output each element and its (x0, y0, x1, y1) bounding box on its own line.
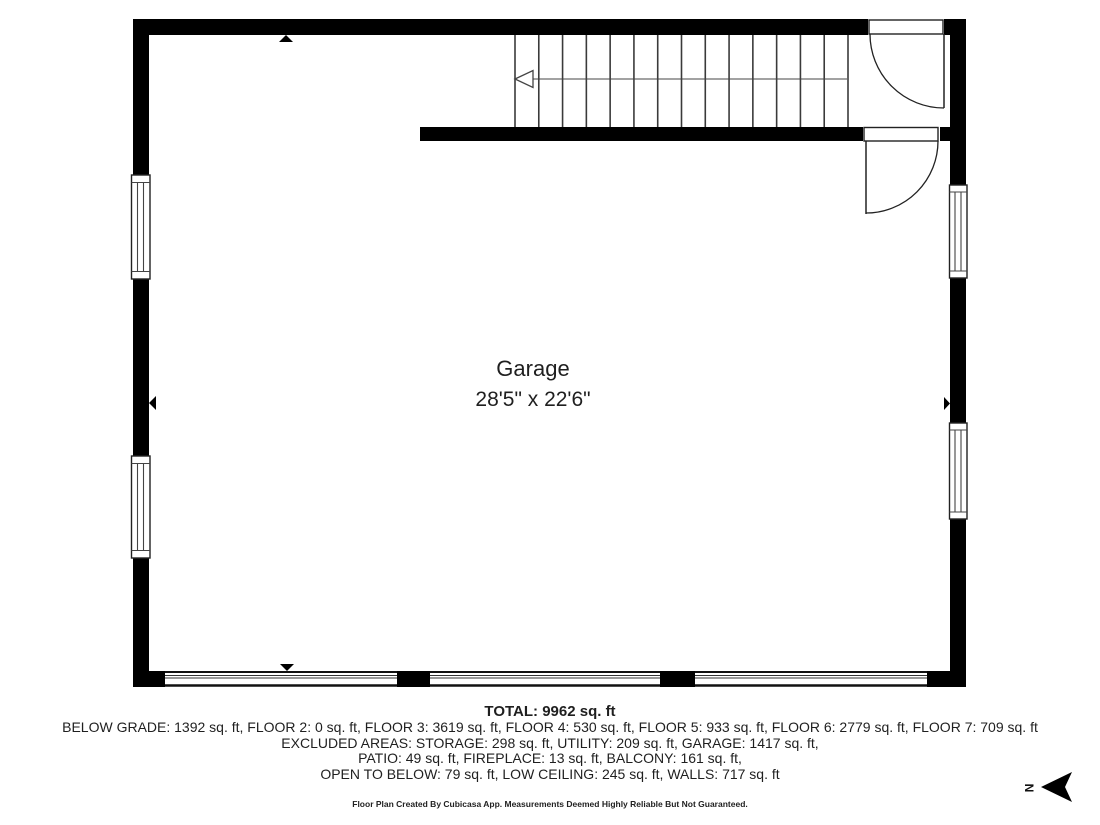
disclaimer-text: Floor Plan Created By Cubicasa App. Meas… (0, 799, 1100, 809)
interior-wall (420, 127, 863, 141)
garage-door-icon (165, 671, 397, 687)
floor-plan-page: Garage 28'5" x 22'6" TOTAL: 9962 sq. ft … (0, 0, 1100, 825)
compass-n-label: N (1022, 784, 1036, 793)
interior-wall-right-stub (940, 127, 966, 141)
excluded-areas-text-2: PATIO: 49 sq. ft, FIREPLACE: 13 sq. ft, … (0, 751, 1100, 767)
door-top-leaf-panel (869, 20, 943, 34)
room-name-label: Garage (383, 356, 683, 382)
garage-door-icon (430, 671, 660, 687)
window-right-lower (950, 423, 968, 519)
floor-plan-drawing (0, 0, 1100, 700)
window-left-upper (132, 175, 151, 279)
north-compass-icon: N (1018, 766, 1088, 812)
area-summary: TOTAL: 9962 sq. ft BELOW GRADE: 1392 sq.… (0, 703, 1100, 782)
left-wall (133, 19, 149, 687)
north-arrow-shape (1041, 772, 1072, 802)
top-wall (133, 19, 868, 35)
garage-door-icon (695, 671, 927, 687)
floor-areas-text: BELOW GRADE: 1392 sq. ft, FLOOR 2: 0 sq.… (0, 720, 1100, 736)
door-interior-leaf-panel (864, 128, 938, 142)
excluded-areas-text-3: OPEN TO BELOW: 79 sq. ft, LOW CEILING: 2… (0, 767, 1100, 783)
right-wall (950, 19, 966, 687)
window-left-lower (132, 456, 151, 558)
window-right-upper (950, 185, 968, 278)
excluded-areas-text: EXCLUDED AREAS: STORAGE: 298 sq. ft, UTI… (0, 736, 1100, 752)
room-dimensions-label: 28'5" x 22'6" (383, 388, 683, 412)
total-area-text: TOTAL: 9962 sq. ft (0, 703, 1100, 720)
